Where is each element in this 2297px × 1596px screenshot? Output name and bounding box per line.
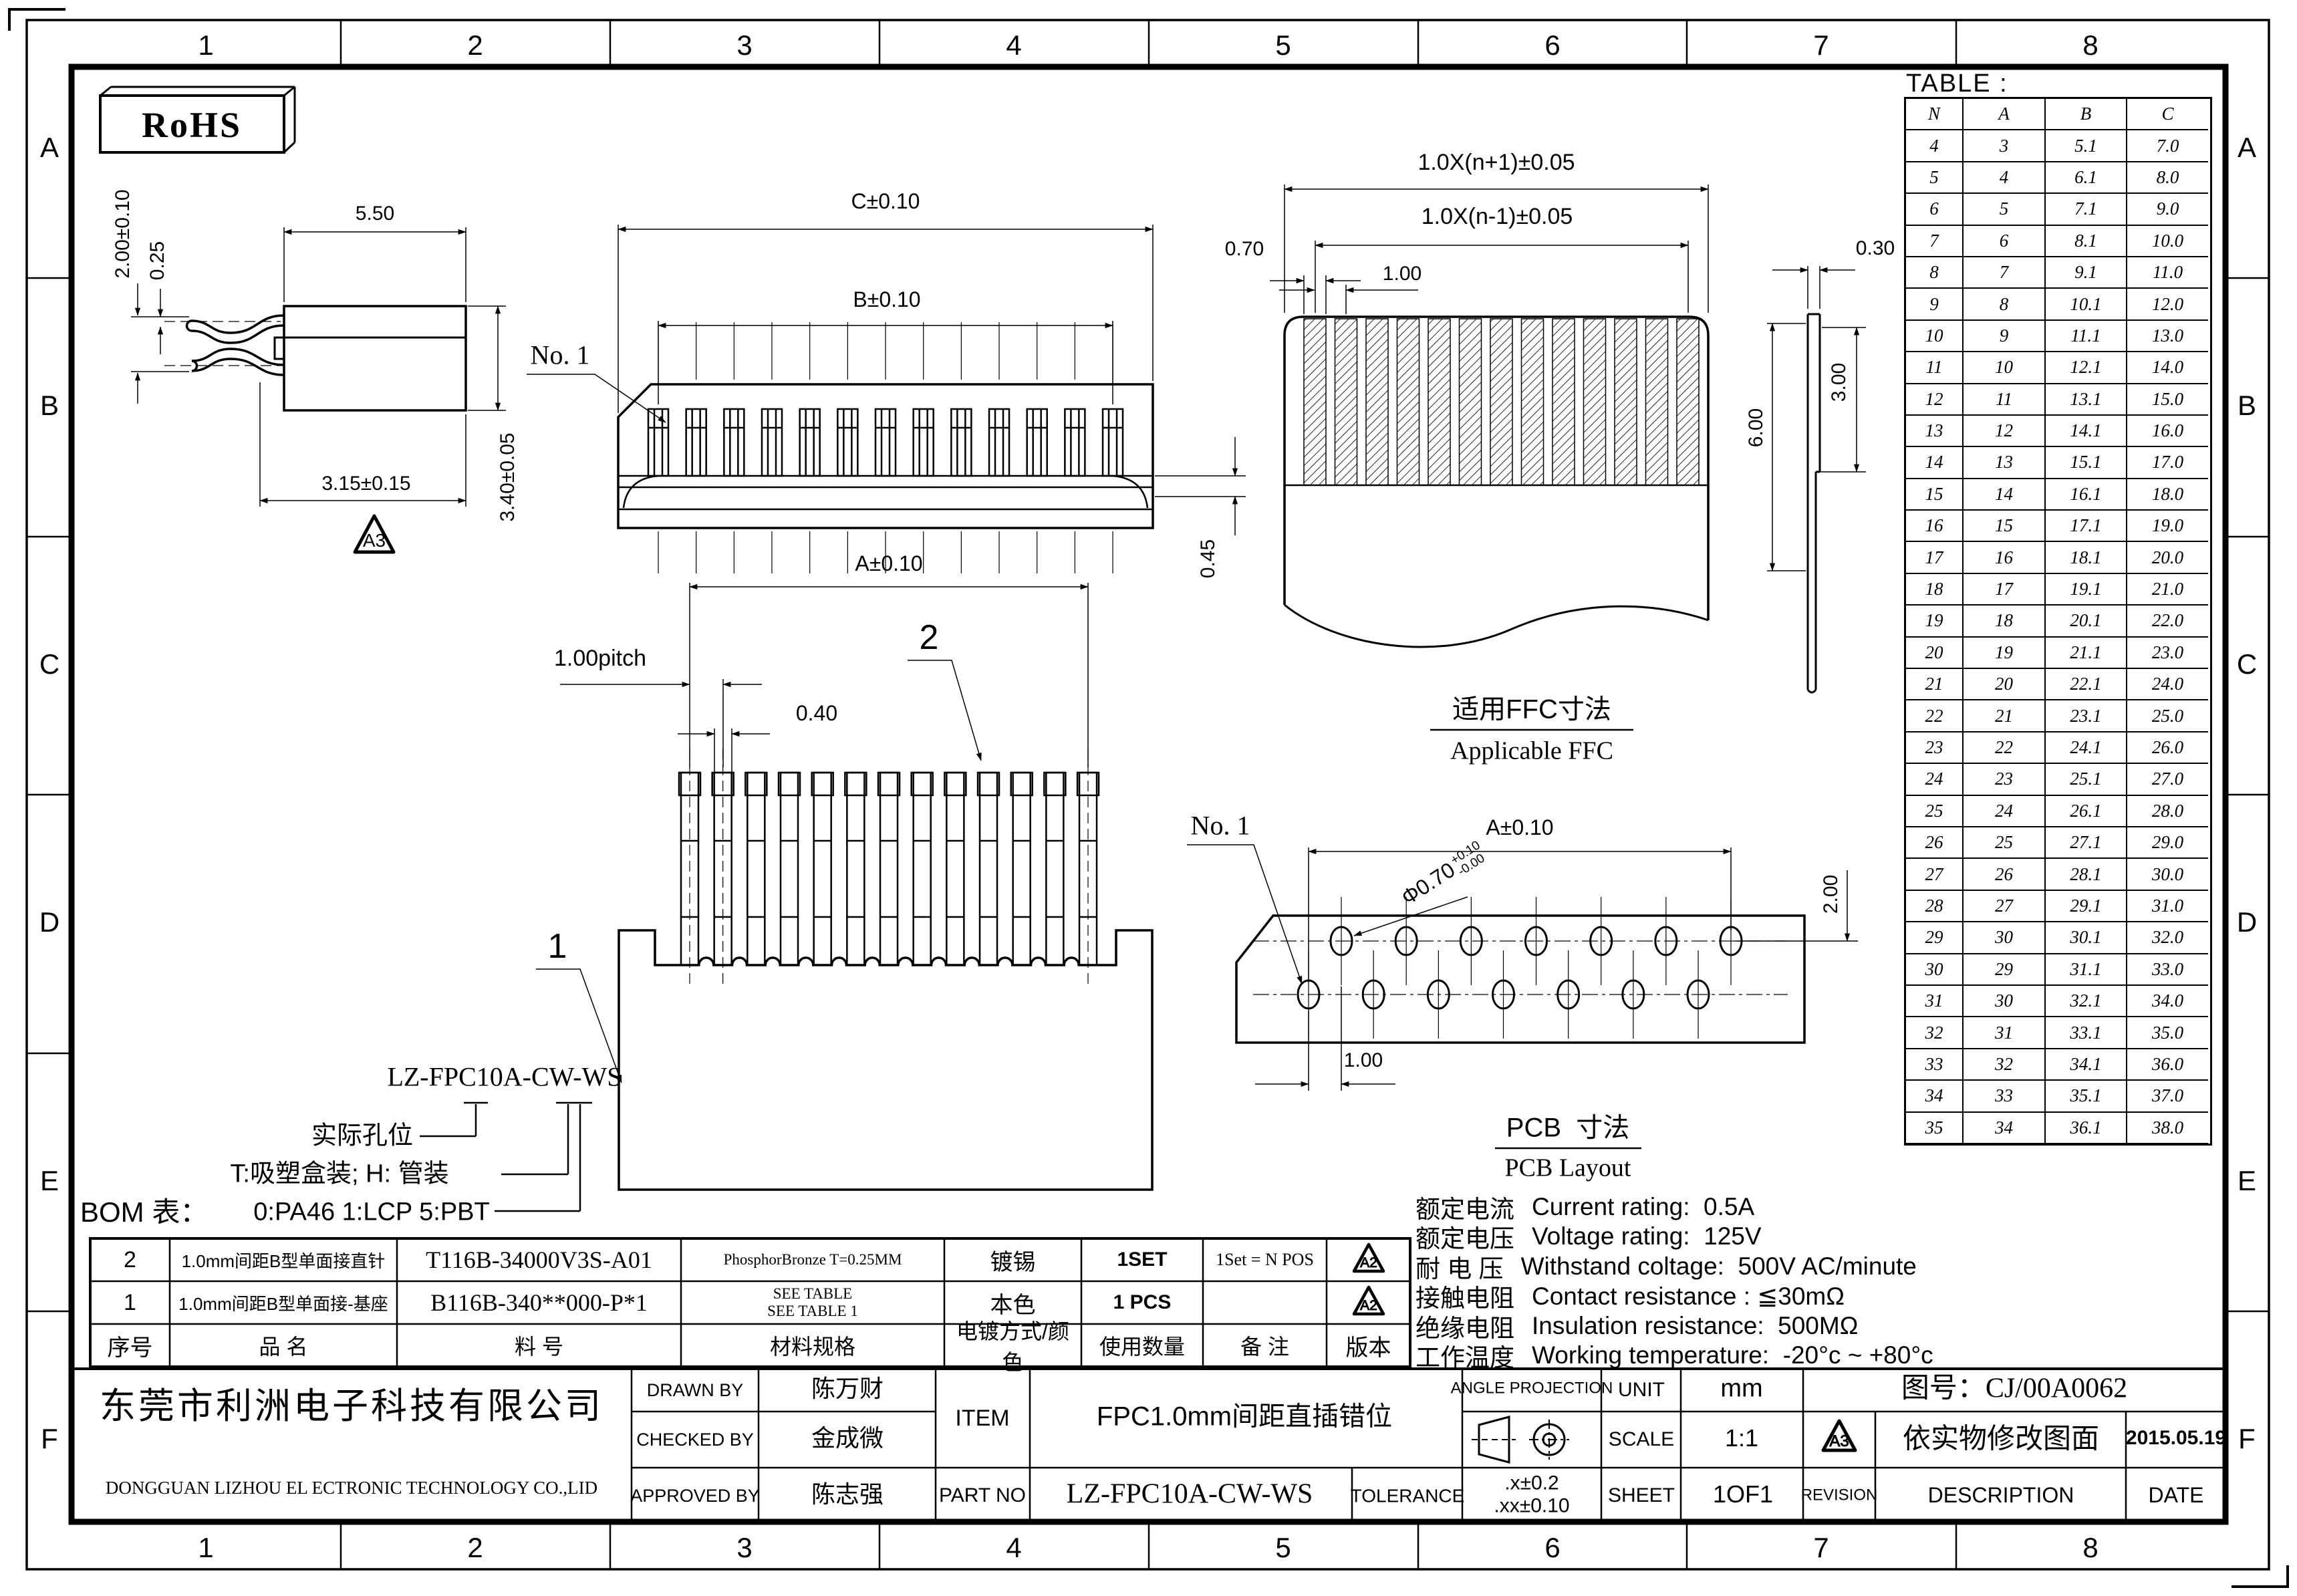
rect-shape — [1044, 773, 1065, 795]
rect-shape — [1027, 409, 1047, 476]
rect-shape — [845, 773, 866, 795]
rect-shape — [724, 409, 744, 476]
dim-pins-a: A±0.10 — [855, 552, 922, 576]
size-table-cell: 21.1 — [2046, 638, 2127, 669]
rating-en: Voltage rating: 125V — [1532, 1222, 1762, 1250]
size-table-cell: 13.0 — [2127, 321, 2208, 352]
rect-shape — [686, 409, 706, 476]
rating-line: 额定电压Voltage rating: 125V — [1415, 1220, 1762, 1252]
size-table-cell: 35 — [1906, 1113, 1964, 1144]
zone-ticks-left — [27, 278, 72, 1311]
size-table-cell: 12.0 — [2127, 289, 2208, 320]
bom-cell: 使用数量 — [1083, 1324, 1201, 1367]
size-table-cell: 33.0 — [2127, 954, 2208, 986]
zone-col-top-8: 8 — [2077, 29, 2104, 61]
size-table-cell: 33 — [1906, 1049, 1964, 1081]
dim-side-pin-thickness: 0.25 — [146, 241, 169, 280]
size-table-cell: 30.0 — [2127, 859, 2208, 890]
rating-en: Current rating: 0.5A — [1532, 1193, 1754, 1221]
path-shape — [914, 841, 931, 917]
size-table-cell: 31.1 — [2046, 954, 2127, 986]
size-table-cell: 30 — [1964, 922, 2046, 954]
zone-row-left-B: B — [35, 390, 64, 422]
view-pcb — [1187, 845, 1858, 1148]
rect-shape — [1397, 319, 1420, 485]
size-table-cell: 34 — [1906, 1081, 1964, 1112]
zone-row-right-B: B — [2232, 390, 2262, 422]
size-table-cell: 17 — [1906, 542, 1964, 573]
revision-description: 依实物修改图面 — [1903, 1422, 2099, 1454]
size-table-cell: 32.1 — [2046, 986, 2127, 1017]
size-table-cell: 34 — [1964, 1113, 2046, 1144]
size-table-cell: 11.1 — [2046, 321, 2127, 352]
zone-col-top-6: 6 — [1539, 29, 1566, 61]
item-value: FPC1.0mm间距直插错位 — [1097, 1402, 1392, 1432]
bom-cell: 材料规格 — [683, 1324, 942, 1367]
zone-col-bottom-1: 1 — [192, 1532, 219, 1564]
size-table-cell: 22 — [1964, 733, 2046, 764]
front-dimensions — [527, 225, 1246, 535]
size-table-cell: 14.1 — [2046, 416, 2127, 447]
size-table-cell: 30.1 — [2046, 922, 2127, 954]
zone-col-top-2: 2 — [462, 29, 489, 61]
rect-shape — [1304, 319, 1326, 485]
size-table-cell: 29 — [1906, 922, 1964, 954]
path-shape — [980, 841, 997, 917]
size-table-cell: 4 — [1964, 162, 2046, 194]
bom-cell: 电镀方式/颜色 — [946, 1324, 1079, 1367]
pcb-dimensions — [1187, 845, 1858, 1091]
path-shape — [814, 841, 831, 917]
scale-value: 1:1 — [1725, 1425, 1758, 1452]
angle-projection-symbol — [1472, 1417, 1569, 1462]
path-shape — [1373, 897, 1406, 1039]
path-shape — [1046, 841, 1063, 917]
dim-strip-exposed: 3.00 — [1828, 363, 1851, 402]
size-table-cell: 35.1 — [2046, 1081, 2127, 1112]
size-table-cell: 10.1 — [2046, 289, 2127, 320]
size-table-cell: 8 — [1964, 289, 2046, 320]
size-table-cell: 32.0 — [2127, 922, 2208, 954]
tolerance-label: TOLERANCE — [1351, 1485, 1465, 1506]
size-table-cell: 36.1 — [2046, 1113, 2127, 1144]
bom-cell: 1Set = N POS — [1205, 1238, 1325, 1281]
size-table-cell: 24 — [1906, 764, 1964, 795]
rating-en: Insulation resistance: 500MΩ — [1532, 1312, 1858, 1340]
rating-cn: 工作温度 — [1415, 1337, 1514, 1373]
size-table-cell: 24 — [1964, 796, 2046, 827]
zone-col-bottom-2: 2 — [462, 1532, 489, 1564]
dim-pins-pitch: 1.00pitch — [554, 646, 646, 671]
dim-pcb-row: 2.00 — [1820, 875, 1843, 914]
size-table-cell: 22.0 — [2127, 606, 2208, 637]
rating-line: 接触电阻Contact resistance : ≦30mΩ — [1415, 1280, 1845, 1312]
rect-shape — [1013, 773, 1031, 965]
size-table-cell: 14 — [1906, 447, 1964, 479]
zone-col-top-4: 4 — [1000, 29, 1027, 61]
size-table-title: TABLE : — [1906, 70, 2008, 98]
size-table-cell: 19.0 — [2127, 511, 2208, 542]
size-table-cell: 8 — [1906, 257, 1964, 289]
size-table-cell: 24.1 — [2046, 733, 2127, 764]
pcb-caption-cn: PCB 寸法 — [1506, 1113, 1629, 1144]
dim-ffc-outer: 1.0X(n+1)±0.05 — [1417, 150, 1575, 175]
bom-cell: B116B-340**000-P*1 — [399, 1281, 679, 1324]
revision-a3-label: A3 — [1829, 1432, 1849, 1450]
view-front — [527, 225, 1246, 573]
zone-col-top-1: 1 — [192, 29, 219, 61]
tolerance-values: .x±0.2.xx±0.10 — [1494, 1472, 1569, 1516]
path-shape — [686, 409, 706, 476]
checked-by-label: CHECKED BY — [636, 1430, 754, 1450]
rect-shape — [847, 773, 864, 965]
drawing-number: 图号：CJ/00A0062 — [1901, 1373, 2127, 1404]
bom-cell: 镀锡 — [946, 1238, 1079, 1281]
zone-row-right-D: D — [2232, 906, 2262, 938]
dim-pcb-a: A±0.10 — [1486, 816, 1553, 840]
size-table-cell: 18.1 — [2046, 542, 2127, 573]
size-table-cell: 26 — [1964, 859, 2046, 890]
rect-shape — [878, 773, 900, 795]
ffc-caption-en: Applicable FFC — [1450, 737, 1613, 766]
size-table-cell: 25 — [1906, 796, 1964, 827]
path-shape — [1698, 897, 1731, 1039]
path-shape — [1438, 897, 1471, 1039]
path-shape — [914, 409, 934, 476]
rect-shape — [1584, 319, 1606, 485]
path-shape — [762, 409, 782, 476]
size-table-cell: 4 — [1906, 130, 1964, 162]
part-tree-pn: LZ-FPC10A-CW-WS — [387, 1063, 622, 1093]
size-table-cell: 12 — [1906, 384, 1964, 416]
size-table-cell: 13 — [1906, 416, 1964, 447]
balloon-1: 1 — [548, 927, 567, 966]
size-table-cell: 5 — [1906, 162, 1964, 194]
size-table-header: A — [1964, 99, 2046, 130]
dim-front-c: C±0.10 — [851, 190, 920, 214]
size-table-cell: 21.0 — [2127, 574, 2208, 606]
dim-side-height: 3.40±0.05 — [497, 432, 519, 521]
bom-cell: 1.0mm间距B型单面接-基座 — [172, 1281, 395, 1324]
zone-ticks-right — [2225, 278, 2269, 1311]
size-table-cell: 9 — [1964, 321, 2046, 352]
rect-shape — [1335, 319, 1357, 485]
dim-ffc-inner: 1.0X(n-1)±0.05 — [1422, 204, 1573, 229]
size-table-cell: 28 — [1906, 891, 1964, 922]
size-table-cell: 31.0 — [2127, 891, 2208, 922]
rect-shape — [1490, 319, 1512, 485]
size-table-cell: 15 — [1964, 511, 2046, 542]
view-ffc — [1270, 184, 1708, 730]
size-table-cell: 11 — [1906, 352, 1964, 384]
rect-shape — [951, 409, 971, 476]
size-table-cell: 23.0 — [2127, 638, 2208, 669]
size-table-cell: 18 — [1906, 574, 1964, 606]
size-table-cell: 13 — [1964, 447, 2046, 479]
part-tree-l1: 实际孔位 — [311, 1122, 413, 1151]
size-table-cell: 33 — [1964, 1081, 2046, 1112]
company-name-cn: 东莞市利洲电子科技有限公司 — [100, 1386, 603, 1426]
rect-shape — [745, 773, 767, 795]
size-table-cell: 10.0 — [2127, 226, 2208, 257]
zone-row-left-C: C — [35, 648, 64, 680]
size-table-cell: 11.0 — [2127, 257, 2208, 289]
view-strip — [1767, 266, 1866, 692]
rect-shape — [1615, 319, 1637, 485]
bom-cell: 1SET — [1083, 1238, 1201, 1281]
size-table-cell: 20.1 — [2046, 606, 2127, 637]
zone-row-left-E: E — [35, 1165, 64, 1197]
rect-shape — [800, 409, 820, 476]
path-shape — [1065, 409, 1085, 476]
approved-by-value: 陈志强 — [811, 1481, 884, 1508]
size-table-cell: 34.1 — [2046, 1049, 2127, 1081]
size-table-cell: 26.1 — [2046, 796, 2127, 827]
rect-shape — [1522, 319, 1544, 485]
bom-cell: 1 PCS — [1083, 1281, 1201, 1324]
dim-front-gap: 0.45 — [1197, 539, 1220, 578]
rect-shape — [1366, 319, 1388, 485]
size-table-cell: 14.0 — [2127, 352, 2208, 384]
dim-ffc-finger-width: 0.70 — [1225, 238, 1264, 261]
bom-cell: 料 号 — [399, 1324, 679, 1367]
zone-col-bottom-7: 7 — [1808, 1532, 1835, 1564]
rect-shape — [1046, 773, 1063, 965]
rect-shape — [837, 409, 857, 476]
size-table-cell: 27.1 — [2046, 827, 2127, 859]
bom-cell: 1.0mm间距B型单面接直针 — [172, 1238, 395, 1281]
size-table-cell: 7 — [1906, 226, 1964, 257]
path-shape — [1569, 897, 1601, 1039]
bom-cell: 品 名 — [172, 1324, 395, 1367]
size-table-cell: 10 — [1964, 352, 2046, 384]
view-side: A3 — [131, 227, 506, 552]
zone-row-right-C: C — [2232, 648, 2262, 680]
revision-label: REVISION — [1801, 1487, 1878, 1505]
size-table-cell: 7.1 — [2046, 194, 2127, 225]
size-table-cell: 16.0 — [2127, 416, 2208, 447]
size-table-cell: 16 — [1964, 542, 2046, 573]
front-no1-label: No. 1 — [531, 341, 590, 371]
sheet-value: 1OF1 — [1713, 1481, 1773, 1508]
rect-shape — [989, 409, 1009, 476]
size-table-cell: 27 — [1964, 891, 2046, 922]
size-table-cell: 23 — [1906, 733, 1964, 764]
size-table-cell: 12.1 — [2046, 352, 2127, 384]
date-label: DATE — [2149, 1484, 2204, 1508]
size-table-cell: 21 — [1964, 700, 2046, 732]
rect-shape — [912, 773, 933, 795]
path-shape — [1027, 409, 1047, 476]
rect-shape — [648, 409, 668, 476]
bom-cell: 版本 — [1329, 1324, 1408, 1367]
size-table-cell: 25 — [1964, 827, 2046, 859]
pcb-caption-en: PCB Layout — [1505, 1154, 1631, 1183]
zone-row-left-D: D — [35, 906, 64, 938]
size-table-cell: 6 — [1906, 194, 1964, 225]
zone-row-right-E: E — [2232, 1165, 2262, 1197]
zone-col-top-7: 7 — [1808, 29, 1835, 61]
size-table-cell: 14 — [1964, 479, 2046, 511]
size-table-cell: 21 — [1906, 669, 1964, 700]
rect-shape — [875, 409, 896, 476]
size-table: NABC435.17.0546.18.0657.19.0768.110.0879… — [1904, 97, 2212, 1146]
size-table-cell: 19.1 — [2046, 574, 2127, 606]
rect-shape — [812, 773, 833, 795]
size-table-cell: 5.1 — [2046, 130, 2127, 162]
drawing-sheet: A3 — [0, 0, 2297, 1596]
angle-projection-label: ANGLE PROJECTION — [1451, 1380, 1613, 1398]
size-table-cell: 9.0 — [2127, 194, 2208, 225]
drawn-by-label: DRAWN BY — [647, 1380, 744, 1400]
size-table-cell: 12 — [1964, 416, 2046, 447]
size-table-cell: 29.0 — [2127, 827, 2208, 859]
description-label: DESCRIPTION — [1928, 1484, 2074, 1508]
size-table-cell: 7 — [1964, 257, 2046, 289]
size-table-cell: 8.0 — [2127, 162, 2208, 194]
size-table-cell: 36.0 — [2127, 1049, 2208, 1081]
bom-cell: PhosphorBronze T=0.25MM — [683, 1238, 942, 1281]
path-shape — [724, 409, 744, 476]
size-table-cell: 34.0 — [2127, 986, 2208, 1017]
path-shape — [1103, 409, 1123, 476]
size-table-cell: 17.0 — [2127, 447, 2208, 479]
view-pins — [536, 583, 1152, 1190]
size-table-cell: 16 — [1906, 511, 1964, 542]
path-shape — [1633, 897, 1666, 1039]
bom-cell: 2 — [92, 1238, 168, 1281]
dim-side-width: 5.50 — [356, 203, 394, 225]
zone-ticks-top — [341, 20, 1956, 67]
path-shape — [1504, 897, 1536, 1039]
zone-col-top-5: 5 — [1270, 29, 1297, 61]
tolerance-xx: .xx±0.10 — [1494, 1494, 1569, 1517]
dim-side-depth: 3.15±0.15 — [321, 473, 410, 495]
size-table-cell: 7.0 — [2127, 130, 2208, 162]
checked-by-value: 金成微 — [811, 1425, 884, 1452]
size-table-cell: 23.1 — [2046, 700, 2127, 732]
drawn-by-value: 陈万财 — [811, 1375, 884, 1402]
item-label: ITEM — [955, 1406, 1009, 1431]
rect-shape — [1646, 319, 1668, 485]
zone-col-bottom-4: 4 — [1000, 1532, 1027, 1564]
zone-row-right-F: F — [2232, 1423, 2262, 1455]
size-table-cell: 33.1 — [2046, 1017, 2127, 1049]
dim-strip-length: 6.00 — [1745, 408, 1768, 447]
rect-shape — [779, 773, 800, 795]
scale-label: SCALE — [1609, 1428, 1674, 1451]
rating-en: Working temperature: -20°c ~ +80°c — [1532, 1341, 1933, 1369]
size-table-cell: 13.1 — [2046, 384, 2127, 416]
size-table-cell: 28.0 — [2127, 796, 2208, 827]
size-table-cell: 27 — [1906, 859, 1964, 890]
part-tree-l2: T:吸塑盒装; H: 管装 — [230, 1160, 448, 1189]
sheet-label: SHEET — [1608, 1484, 1675, 1507]
size-table-cell: 30 — [1964, 986, 2046, 1017]
zone-col-top-3: 3 — [731, 29, 758, 61]
bom-rev-a2-top: A2 — [1360, 1255, 1377, 1271]
path-shape — [951, 409, 971, 476]
size-table-cell: 22 — [1906, 700, 1964, 732]
size-table-cell: 32 — [1964, 1049, 2046, 1081]
bom-cell: 1 — [92, 1281, 168, 1324]
path-shape — [781, 841, 798, 917]
company-name-en: DONGGUAN LIZHOU EL ECTRONIC TECHNOLOGY C… — [106, 1478, 597, 1498]
size-table-cell: 20.0 — [2127, 542, 2208, 573]
size-table-cell: 24.0 — [2127, 669, 2208, 700]
rect-shape — [1011, 773, 1033, 795]
partno-value: LZ-FPC10A-CW-WS — [1067, 1478, 1313, 1510]
size-table-cell: 10 — [1906, 321, 1964, 352]
path-shape — [946, 841, 964, 917]
pcb-no1-label: No. 1 — [1191, 811, 1250, 841]
rect-shape — [1460, 319, 1482, 485]
size-table-cell: 19 — [1906, 606, 1964, 637]
side-a3-label: A3 — [363, 530, 386, 551]
size-table-cell: 19 — [1964, 638, 2046, 669]
bom-rev-a2-bottom: A2 — [1360, 1298, 1377, 1313]
side-dimensions — [131, 227, 506, 507]
size-table-cell: 8.1 — [2046, 226, 2127, 257]
path-shape — [800, 409, 820, 476]
unit-value: mm — [1720, 1375, 1762, 1404]
size-table-cell: 30 — [1906, 954, 1964, 986]
dim-front-b: B±0.10 — [853, 288, 920, 312]
path-shape — [1309, 897, 1341, 1039]
rect-shape — [1428, 319, 1450, 485]
path-shape — [1013, 841, 1031, 917]
size-table-cell: 25.1 — [2046, 764, 2127, 795]
zone-col-bottom-5: 5 — [1270, 1532, 1297, 1564]
size-table-cell: 38.0 — [2127, 1113, 2208, 1144]
size-table-cell: 31 — [1906, 986, 1964, 1017]
rect-shape — [978, 773, 999, 795]
path-shape — [989, 409, 1009, 476]
part-tree-lines — [420, 1103, 592, 1211]
zone-row-right-A: A — [2232, 132, 2262, 164]
rect-shape — [814, 773, 831, 965]
size-table-cell: 25.0 — [2127, 700, 2208, 732]
bom-cell: 序号 — [92, 1324, 168, 1367]
size-table-cell: 16.1 — [2046, 479, 2127, 511]
rating-en: Withstand coltage: 500V AC/minute — [1521, 1252, 1917, 1281]
ffc-caption-cn: 适用FFC寸法 — [1452, 695, 1611, 725]
rect-shape — [1103, 409, 1123, 476]
path-shape — [847, 841, 864, 917]
size-table-cell: 5 — [1964, 194, 2046, 225]
size-table-cell: 6 — [1964, 226, 2046, 257]
rect-shape — [1552, 319, 1575, 485]
size-table-cell: 26 — [1906, 827, 1964, 859]
dim-ffc-pitch: 1.00 — [1383, 263, 1422, 285]
path-shape — [880, 841, 898, 917]
rating-en: Contact resistance : ≦30mΩ — [1532, 1282, 1845, 1311]
bom-cell: T116B-34000V3S-A01 — [399, 1238, 679, 1281]
dim-side-pin-offset: 2.00±0.10 — [112, 189, 134, 278]
path-shape — [875, 409, 896, 476]
bom-cell: SEE TABLE SEE TABLE 1 — [683, 1281, 942, 1324]
size-table-cell: 6.1 — [2046, 162, 2127, 194]
unit-label: UNIT — [1618, 1379, 1665, 1402]
part-tree-l3: 0:PA46 1:LCP 5:PBT — [253, 1198, 489, 1227]
dim-strip-thickness: 0.30 — [1856, 237, 1895, 260]
size-table-cell: 31 — [1964, 1017, 2046, 1049]
revision-date: 2015.05.19 — [2126, 1427, 2226, 1450]
path-shape — [837, 409, 857, 476]
size-table-cell: 29 — [1964, 954, 2046, 986]
bom-cell — [1205, 1281, 1325, 1324]
size-table-header: C — [2127, 99, 2208, 130]
